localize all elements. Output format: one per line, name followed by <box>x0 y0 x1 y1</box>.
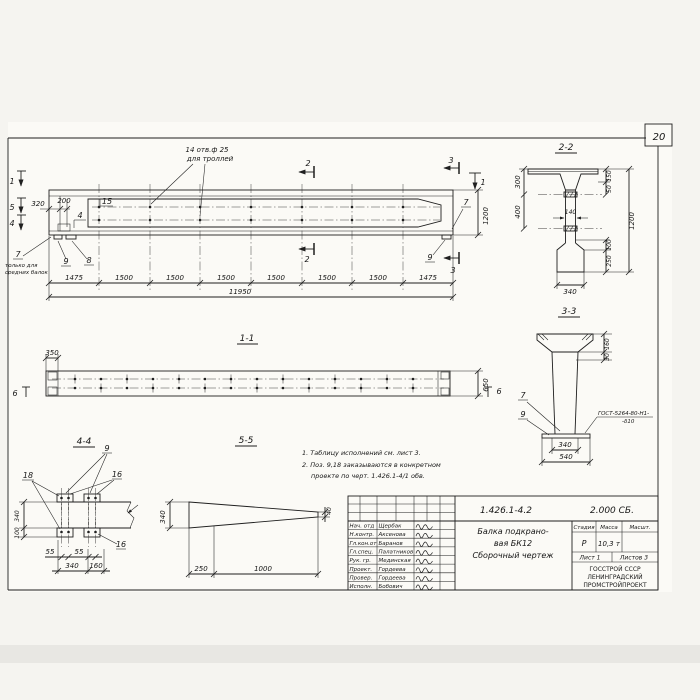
holes-note-line1: 14 отв.ф 25 <box>186 146 230 154</box>
org-line-3: ПРОМСТРОЙПРОЕКТ <box>583 582 647 589</box>
dim-340-taper: 340 <box>159 510 167 524</box>
dim-160-bolts: 160 <box>89 562 103 570</box>
name-5: Гордеева <box>379 567 407 573</box>
mass-value: 10,3 т <box>598 540 621 548</box>
sheet-number: 20 <box>653 132 666 143</box>
dim-1200-section: 1200 <box>628 212 636 230</box>
chain-dim: 1500 <box>115 274 133 282</box>
callout-16b: 16 <box>116 540 126 549</box>
dim-100-plate: 100 <box>14 527 21 539</box>
callout-4: 4 <box>77 211 82 220</box>
dim-250: 250 <box>606 255 613 267</box>
notes-block: 1. Таблицу исполнений см. лист 3. 2. Поз… <box>302 449 441 480</box>
doc-code: 2.000 СБ. <box>590 506 634 516</box>
dim-340-bolts: 340 <box>65 562 79 570</box>
marker-3-top: 3 <box>448 156 453 165</box>
note-line-3: проекте по черт. 1.426.1-4/1 обв. <box>311 472 425 480</box>
dim-100: 100 <box>606 239 613 251</box>
role-1: Н.контр. <box>350 532 375 538</box>
doc-number: 1.426.1-4.2 <box>480 506 532 516</box>
stage-value: Р <box>582 539 587 548</box>
section-1-1-label: 1-1 <box>240 334 255 344</box>
role-6: Провер. <box>350 575 373 581</box>
drawing-sheet: 20 14 отв.ф 25 для троллей <box>0 0 700 700</box>
scale-header: Масшт. <box>629 525 650 531</box>
marker-2-top: 2 <box>305 159 310 168</box>
dim-1000: 1000 <box>254 565 272 573</box>
callout-16: 16 <box>112 470 122 479</box>
name-1: Аксенова <box>378 532 407 538</box>
role-2: Гл.кон.от <box>350 541 378 547</box>
name-6: Гордеева <box>379 575 407 581</box>
chain-dim: 1500 <box>217 274 235 282</box>
note-line-1: 1. Таблицу исполнений см. лист 3. <box>302 449 421 457</box>
marker-1-label: 1 <box>9 177 14 186</box>
mass-header: Масса <box>600 525 618 531</box>
name-0: Щербак <box>379 524 403 530</box>
marker-4-label: 4 <box>9 219 14 228</box>
dim-40: 40 <box>326 507 333 515</box>
chain-dim: 1500 <box>369 274 387 282</box>
dim-350: 350 <box>45 349 59 357</box>
callout-9-anchor: 9 <box>104 444 109 453</box>
chain-dim: 1500 <box>267 274 285 282</box>
name-3: Палатников <box>379 550 414 556</box>
dim-160: 160 <box>604 338 611 350</box>
drawing-title-2: вая БК12 <box>494 539 532 548</box>
dim-50: 50 <box>606 185 613 193</box>
marker-2-bottom: 2 <box>304 255 309 264</box>
org-line-2: ЛЕНИНГРАДСКИЙ <box>587 574 642 581</box>
marker-1-right: 1 <box>480 178 485 187</box>
chain-dim: 1500 <box>166 274 184 282</box>
drawing-title-3: Сборочный чертеж <box>473 551 555 560</box>
role-5: Проект. <box>350 567 373 573</box>
dim-400: 400 <box>514 205 522 219</box>
callout-9-section: 9 <box>520 410 525 419</box>
weld-note-line2: -δ10 <box>622 419 635 425</box>
note-line-2: 2. Поз. 9,18 заказываются в конкретном <box>302 461 441 469</box>
dim-320: 320 <box>31 200 45 208</box>
mid-note-2: средних балок <box>5 270 49 276</box>
section-2-2-label: 2-2 <box>559 143 574 153</box>
marker-6-left: 6 <box>12 389 17 398</box>
role-7: Исполн. <box>350 584 373 590</box>
role-3: Гл.спец. <box>350 550 374 556</box>
chain-dim: 1475 <box>65 274 83 282</box>
dim-650: 650 <box>482 378 490 392</box>
sheets-label: Листов 3 <box>619 555 648 562</box>
callout-15: 15 <box>102 197 112 206</box>
section-5-5-label: 5-5 <box>239 436 254 446</box>
dim-55-b: 55 <box>75 548 84 556</box>
section-4-4-label: 4-4 <box>77 437 92 447</box>
dim-total: 11950 <box>229 288 252 296</box>
dim-340-vertical: 340 <box>14 510 21 522</box>
marker-5-label: 5 <box>9 203 14 212</box>
dim-340-bottom: 340 <box>563 288 577 296</box>
dim-140: 140 <box>565 209 577 216</box>
dim-height-1200: 1200 <box>482 207 490 225</box>
weld-note-line1: ГОСТ-5264-80-Н1- <box>598 411 649 417</box>
name-4: Мединская <box>379 558 412 564</box>
dim-30: 30 <box>604 353 611 361</box>
stage-header: Стадия <box>573 525 595 531</box>
callout-9-right: 9 <box>427 253 432 262</box>
section-3-3-label: 3-3 <box>562 307 577 317</box>
dim-150: 150 <box>606 170 613 182</box>
chain-dim: 1500 <box>318 274 336 282</box>
holes-note-line2: для троллей <box>186 155 234 163</box>
role-4: Рук. гр. <box>350 558 372 564</box>
drawing-title-1: Балка подкрано- <box>477 527 548 536</box>
sheet-label: Лист 1 <box>579 555 601 562</box>
callout-18: 18 <box>23 471 33 480</box>
dim-250: 250 <box>194 565 208 573</box>
dim-200: 200 <box>57 197 71 205</box>
dim-55-a: 55 <box>46 548 55 556</box>
chain-dim: 1475 <box>419 274 437 282</box>
org-line-1: ГОССТРОЙ СССР <box>589 566 641 573</box>
callout-8: 8 <box>86 256 91 265</box>
scan-shadow-band <box>0 645 700 663</box>
dim-300: 300 <box>514 175 522 189</box>
dim-340-web: 340 <box>558 441 572 449</box>
marker-6-right: 6 <box>496 387 501 396</box>
mid-note-1: только для <box>5 263 38 269</box>
name-7: Бобович <box>379 584 404 590</box>
blueprint-svg: 20 14 отв.ф 25 для троллей <box>0 0 700 700</box>
role-0: Нач. отд <box>350 524 375 530</box>
dim-540: 540 <box>559 453 573 461</box>
name-2: Баранов <box>379 541 403 547</box>
